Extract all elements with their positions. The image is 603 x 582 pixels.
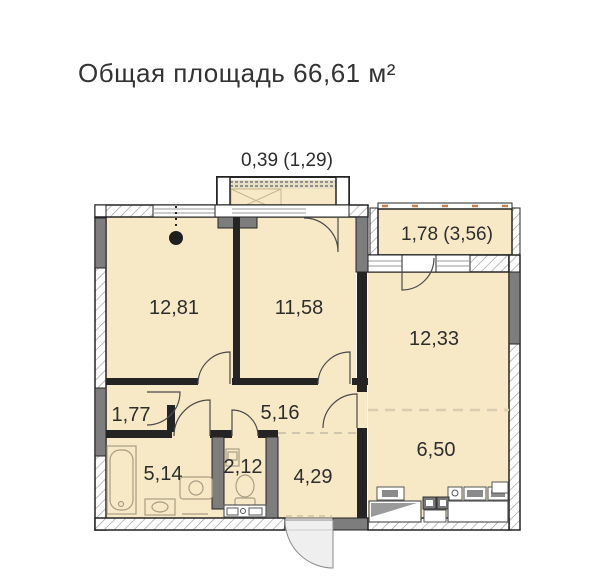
room-label-wc: 2,12 [224, 456, 263, 478]
window-living-2 [436, 255, 470, 272]
room-label-corridor: 5,16 [261, 402, 300, 424]
room-label-kitchen: 6,50 [417, 439, 456, 461]
page-title: Общая площадь 66,61 м² [78, 58, 396, 88]
room-label-entry-nook: 1,77 [112, 404, 151, 426]
balcony-door-opening [402, 255, 436, 272]
room-label-bedroom-2: 11,58 [275, 297, 324, 319]
balcony-right-label: 1,78 (3,56) [401, 224, 493, 245]
floor-plan: Общая площадь 66,61 м² 0,39 (1,29) 1,78 … [0, 0, 603, 582]
window-living [368, 255, 402, 272]
room-label-bathroom: 5,14 [144, 463, 183, 485]
window-bedroom-1 [153, 205, 215, 217]
stove [423, 497, 449, 522]
room-label-living: 12,33 [409, 328, 459, 350]
floor-plan-page: Общая площадь 66,61 м² 0,39 (1,29) 1,78 … [0, 0, 603, 582]
wc-vanity [224, 505, 266, 517]
room-label-bedroom-1: 12,81 [149, 297, 199, 319]
balcony-top-label: 0,39 (1,29) [241, 150, 333, 171]
balcony-right: 1,78 (3,56) [370, 203, 520, 255]
room-label-hallway: 4,29 [294, 466, 333, 488]
entrance-door-swing [285, 520, 333, 568]
window-bedroom-2 [215, 205, 349, 217]
